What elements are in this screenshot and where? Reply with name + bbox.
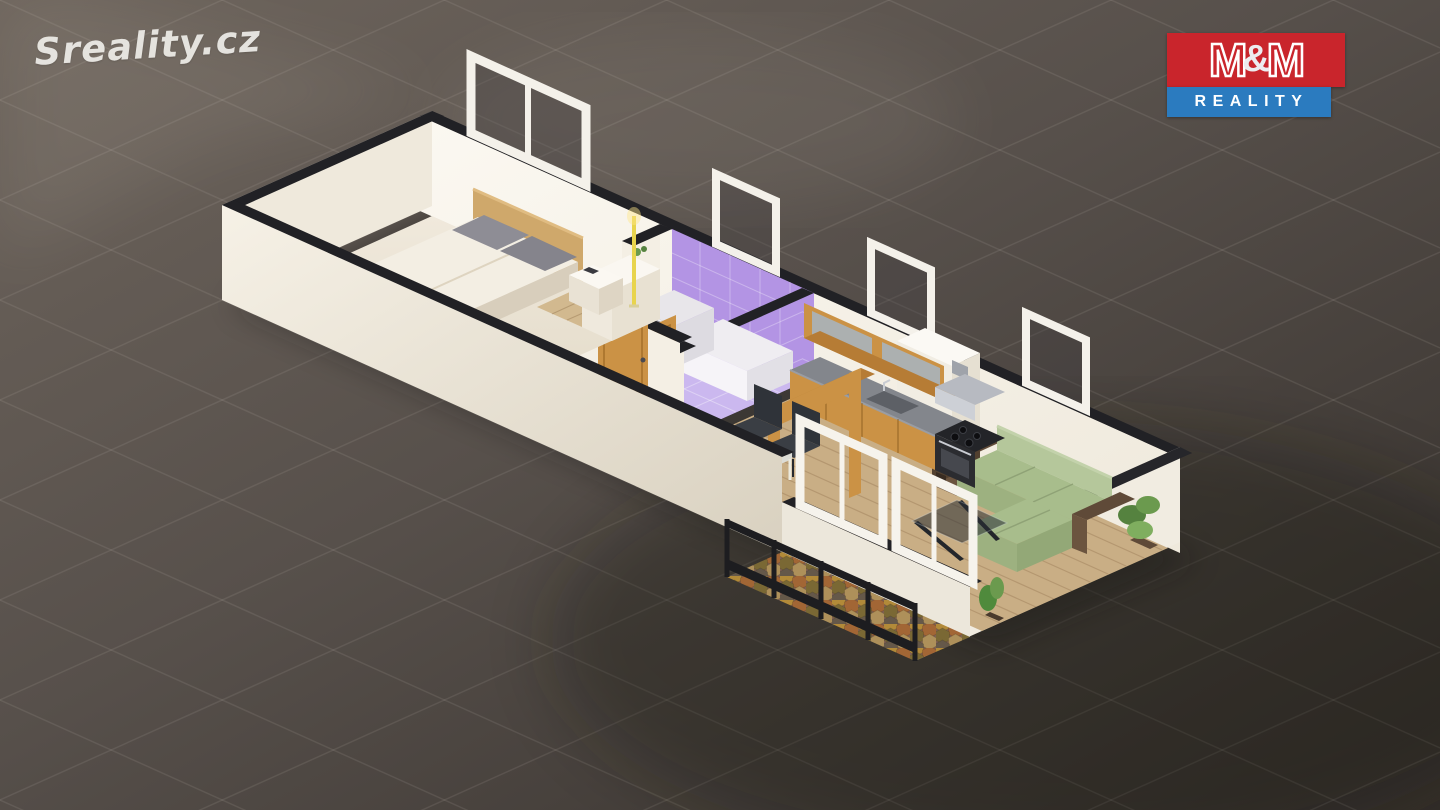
logo-mm-block: M & M xyxy=(1167,33,1345,87)
logo-m-left: M xyxy=(1209,33,1245,87)
scene-canvas xyxy=(0,0,1440,810)
logo-ampersand: & xyxy=(1242,32,1269,86)
logo-m-right: M xyxy=(1267,33,1303,87)
mm-reality-logo: M & M REALITY xyxy=(1167,33,1345,117)
logo-reality-bar: REALITY xyxy=(1167,87,1331,117)
floor-plan-render: Sreality.cz M & M REALITY xyxy=(0,0,1440,810)
